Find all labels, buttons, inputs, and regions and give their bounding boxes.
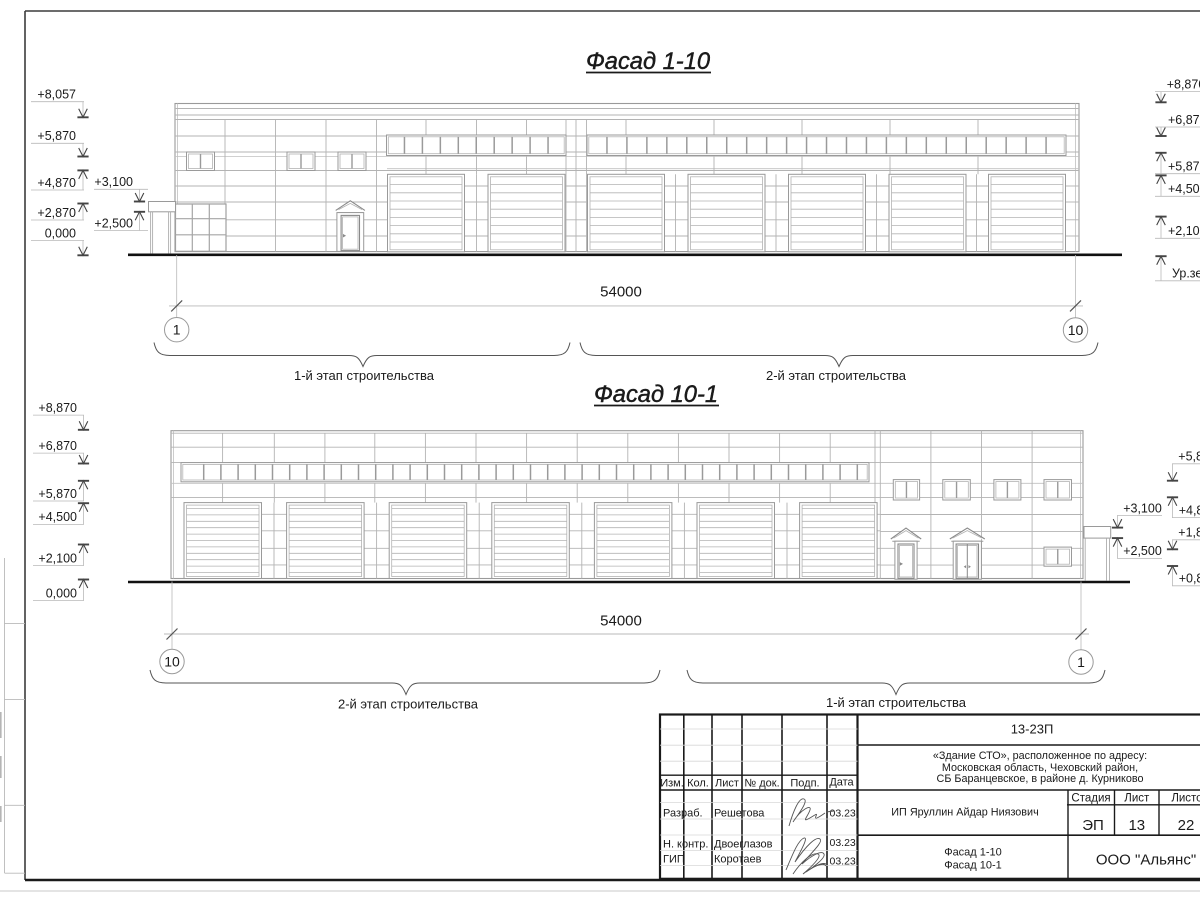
svg-text:+3,100: +3,100 xyxy=(1123,501,1162,515)
svg-text:№ док.: № док. xyxy=(744,778,779,790)
svg-text:54000: 54000 xyxy=(600,284,642,301)
svg-text:03.23: 03.23 xyxy=(830,837,856,849)
svg-text:«Здание СТО», расположенное по: «Здание СТО», расположенное по адресу: xyxy=(933,750,1147,762)
svg-text:0,000: 0,000 xyxy=(45,226,76,240)
svg-text:Фасад 1-10: Фасад 1-10 xyxy=(586,49,710,75)
svg-text:Фасад 10-1: Фасад 10-1 xyxy=(594,382,718,408)
svg-text:СБ Баранцевское, в районе д. К: СБ Баранцевское, в районе д. Курниково xyxy=(937,773,1144,785)
svg-text:+2,870: +2,870 xyxy=(37,206,76,220)
svg-text:ЭП: ЭП xyxy=(1082,817,1104,834)
svg-text:+8,057: +8,057 xyxy=(37,88,76,102)
svg-text:54000: 54000 xyxy=(600,613,642,630)
svg-text:Кол.: Кол. xyxy=(687,778,709,790)
svg-text:1-й этап строительства: 1-й этап строительства xyxy=(826,695,967,710)
svg-text:ГИП: ГИП xyxy=(663,854,685,866)
svg-text:+1,870: +1,870 xyxy=(1178,526,1200,540)
svg-text:+5,870: +5,870 xyxy=(1168,160,1200,174)
svg-text:Фасад 1-10: Фасад 1-10 xyxy=(944,847,1002,859)
svg-text:03.23: 03.23 xyxy=(830,808,856,820)
svg-text:2-й этап строительства: 2-й этап строительства xyxy=(766,368,907,383)
svg-text:+4,500: +4,500 xyxy=(38,510,77,524)
svg-text:13-23П: 13-23П xyxy=(1011,722,1054,737)
svg-text:+2,100: +2,100 xyxy=(38,551,77,565)
svg-text:Двоеглазов: Двоеглазов xyxy=(714,839,773,851)
svg-text:+4,500: +4,500 xyxy=(1168,182,1200,196)
svg-text:+5,870: +5,870 xyxy=(38,487,77,501)
svg-text:+5,870: +5,870 xyxy=(37,129,76,143)
svg-text:10: 10 xyxy=(1068,322,1084,338)
svg-text:Н. контр.: Н. контр. xyxy=(663,839,708,851)
svg-text:+8,870: +8,870 xyxy=(38,401,77,415)
svg-text:2-й этап строительства: 2-й этап строительства xyxy=(338,697,479,712)
svg-text:Лист: Лист xyxy=(1124,793,1150,805)
svg-text:1: 1 xyxy=(1077,654,1085,670)
svg-text:+8,870: +8,870 xyxy=(1167,77,1200,91)
svg-text:+2,100: +2,100 xyxy=(1168,224,1200,238)
svg-text:03.23: 03.23 xyxy=(830,856,856,868)
svg-text:Решетова: Решетова xyxy=(714,808,765,820)
svg-text:10: 10 xyxy=(164,654,180,670)
svg-text:+6,870: +6,870 xyxy=(38,439,77,453)
svg-text:Подп.: Подп. xyxy=(790,778,819,790)
svg-text:+5,870: +5,870 xyxy=(1178,450,1200,464)
svg-text:+4,870: +4,870 xyxy=(1179,503,1200,517)
svg-text:Коротаев: Коротаев xyxy=(714,854,762,866)
svg-text:+2,500: +2,500 xyxy=(1123,544,1162,558)
svg-text:Листов: Листов xyxy=(1171,793,1200,805)
svg-text:1-й этап строительства: 1-й этап строительства xyxy=(294,368,435,383)
svg-text:Лист: Лист xyxy=(715,778,739,790)
svg-text:13: 13 xyxy=(1128,817,1145,834)
svg-text:+6,870: +6,870 xyxy=(1168,113,1200,127)
svg-text:+4,870: +4,870 xyxy=(37,176,76,190)
svg-text:Разраб.: Разраб. xyxy=(663,808,703,820)
svg-text:+3,100: +3,100 xyxy=(94,175,133,189)
svg-text:Изм.: Изм. xyxy=(660,778,684,790)
svg-text:ООО "Альянс": ООО "Альянс" xyxy=(1096,852,1196,869)
svg-text:Стадия: Стадия xyxy=(1071,793,1110,805)
svg-text:1: 1 xyxy=(173,322,181,338)
svg-text:ИП Яруллин Айдар Ниязович: ИП Яруллин Айдар Ниязович xyxy=(891,807,1038,819)
svg-text:0,000: 0,000 xyxy=(46,586,77,600)
svg-text:22: 22 xyxy=(1178,817,1195,834)
svg-text:Дата: Дата xyxy=(829,777,854,789)
svg-text:Фасад 10-1: Фасад 10-1 xyxy=(944,860,1002,872)
svg-text:Ур.земли: Ур.земли xyxy=(1172,267,1200,281)
svg-text:+2,500: +2,500 xyxy=(94,216,133,230)
svg-text:+0,870: +0,870 xyxy=(1179,572,1200,586)
